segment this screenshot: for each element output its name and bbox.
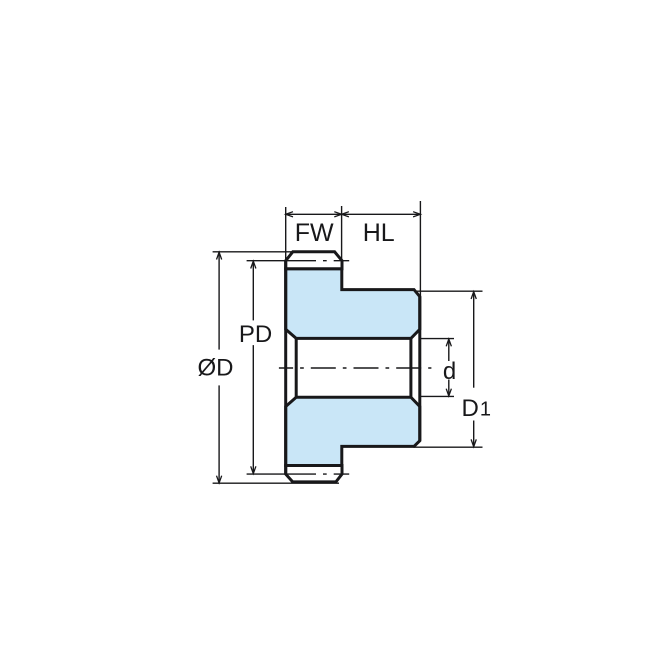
- svg-text:ØD: ØD: [198, 355, 234, 382]
- svg-text:HL: HL: [363, 219, 395, 247]
- svg-text:D: D: [462, 395, 479, 422]
- svg-text:PD: PD: [239, 321, 272, 348]
- svg-text:d: d: [443, 358, 456, 385]
- svg-text:1: 1: [480, 399, 491, 421]
- svg-text:FW: FW: [295, 219, 334, 247]
